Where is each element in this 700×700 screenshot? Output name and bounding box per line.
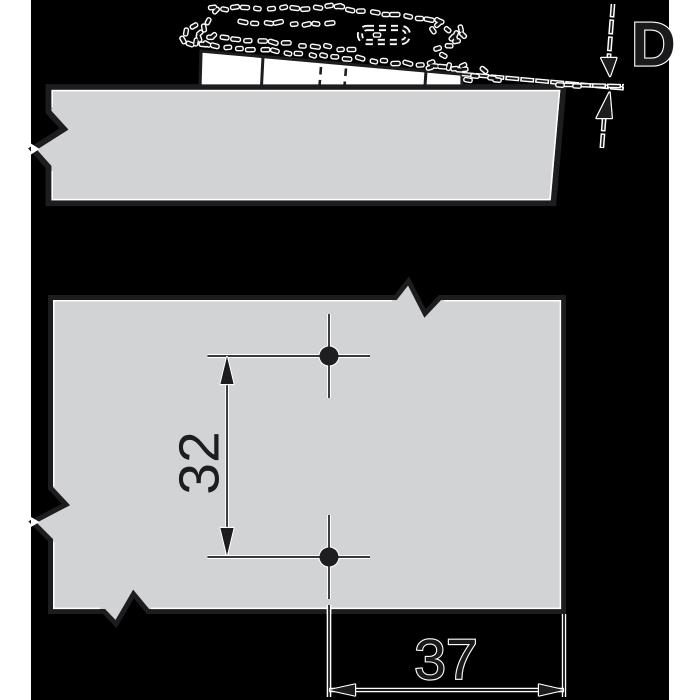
svg-text:37: 37 <box>414 628 477 692</box>
svg-text:D: D <box>631 11 676 80</box>
svg-text:32: 32 <box>168 431 232 494</box>
